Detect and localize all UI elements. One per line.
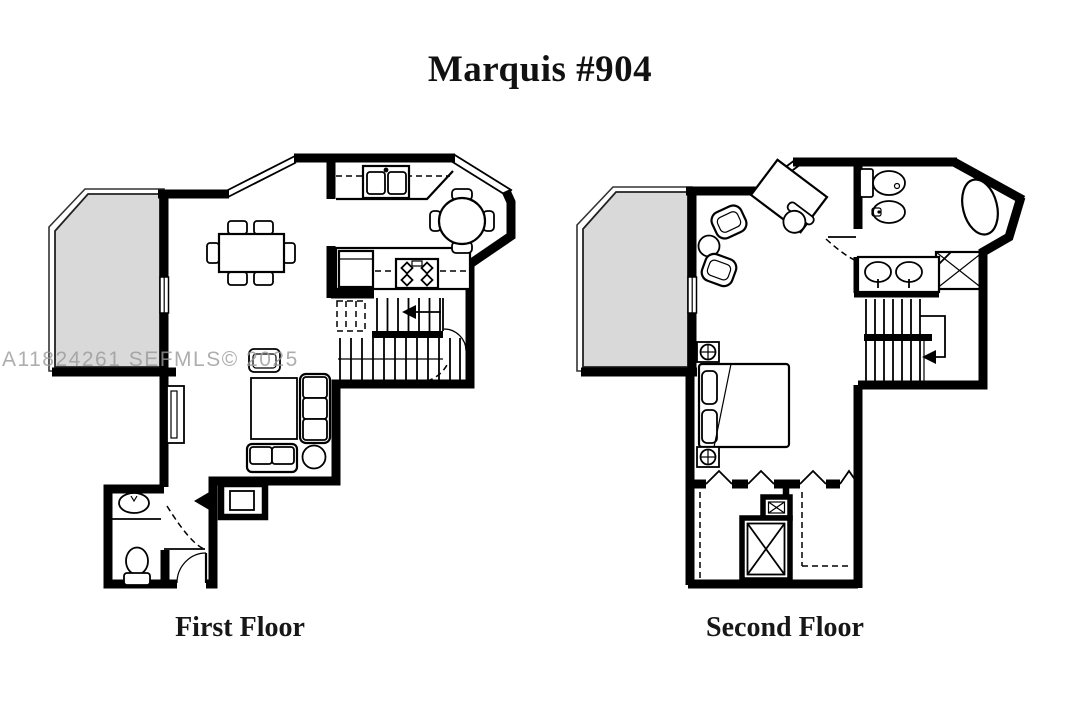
refrigerator <box>339 251 373 287</box>
bathroom-door <box>826 237 857 261</box>
second-floor-label: Second Floor <box>635 612 935 644</box>
breakfast-table <box>430 189 494 253</box>
upper-flight <box>866 299 920 334</box>
powder-door <box>164 506 205 549</box>
nightstand-lamp <box>697 342 719 362</box>
powder-room <box>112 493 205 585</box>
landing-rail <box>372 331 443 338</box>
balcony <box>49 189 164 371</box>
lower-flight <box>338 338 460 382</box>
side-table <box>303 446 326 469</box>
entry-closet <box>221 484 265 517</box>
kitchen-sink <box>363 166 409 198</box>
first-floor-label: First Floor <box>90 612 390 644</box>
bed <box>699 364 789 447</box>
double-vanity <box>858 257 939 292</box>
mechanical-closet <box>742 497 790 580</box>
shower <box>936 252 983 289</box>
area-rug <box>251 378 297 439</box>
sofa <box>300 374 330 443</box>
entry-arrow <box>194 491 211 511</box>
floor-plan-page: Marquis #904 A11824261 SEFMLS© 2025 <box>0 0 1080 720</box>
bidet <box>872 201 905 223</box>
tv <box>167 386 184 443</box>
second-floor-plan <box>577 160 1023 588</box>
first-floor-plan <box>49 155 512 586</box>
balcony <box>577 187 692 371</box>
powder-sink <box>119 493 149 513</box>
staircase <box>338 298 466 382</box>
entry-door <box>177 553 206 583</box>
nightstand-lamp <box>697 447 719 467</box>
armchair <box>699 251 739 288</box>
sliding-door <box>160 277 169 313</box>
sliding-door <box>688 277 697 313</box>
toilet <box>124 548 150 586</box>
loveseat <box>247 444 297 472</box>
lower-flight <box>866 341 924 383</box>
dining-set <box>207 221 295 285</box>
pantry <box>337 301 365 331</box>
stove <box>396 259 438 288</box>
desk <box>751 160 827 240</box>
stair-door-swing <box>427 365 447 381</box>
toilet <box>860 169 905 197</box>
staircase <box>864 299 945 383</box>
landing-rail <box>864 334 932 341</box>
armchair <box>249 349 280 372</box>
armchair <box>709 203 750 242</box>
stair-door-arc <box>444 329 466 351</box>
